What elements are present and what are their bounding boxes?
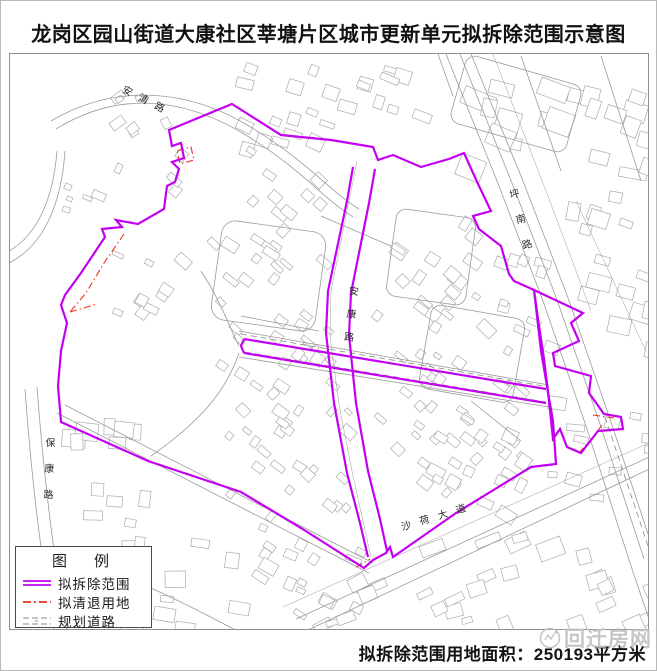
demolition-line-icon	[22, 577, 52, 589]
legend-label: 规划道路	[58, 611, 116, 631]
legend-item-demolition: 拟拆除范围	[22, 573, 145, 592]
legend-label: 拟清退用地	[58, 592, 131, 612]
watermark-text: 回迁房网	[564, 623, 652, 653]
legend-box: 图 例 拟拆除范围 拟清退用地 规划道路	[15, 546, 152, 628]
planned-road-icon	[22, 615, 52, 627]
road-label-baokang: 保康路	[38, 437, 56, 515]
legend-label: 拟拆除范围	[58, 573, 131, 593]
legend-title: 图 例	[22, 550, 145, 571]
schematic-page: 龙岗区园山街道大康社区莘塘片区城市更新单元拟拆除范围示意图	[0, 0, 657, 671]
clearance-line-icon	[22, 596, 52, 608]
watermark: 回迁房网	[538, 623, 652, 653]
legend-item-clearance: 拟清退用地	[22, 592, 145, 611]
legend-item-planned-road: 规划道路	[22, 611, 145, 630]
watermark-logo-icon	[538, 626, 562, 650]
